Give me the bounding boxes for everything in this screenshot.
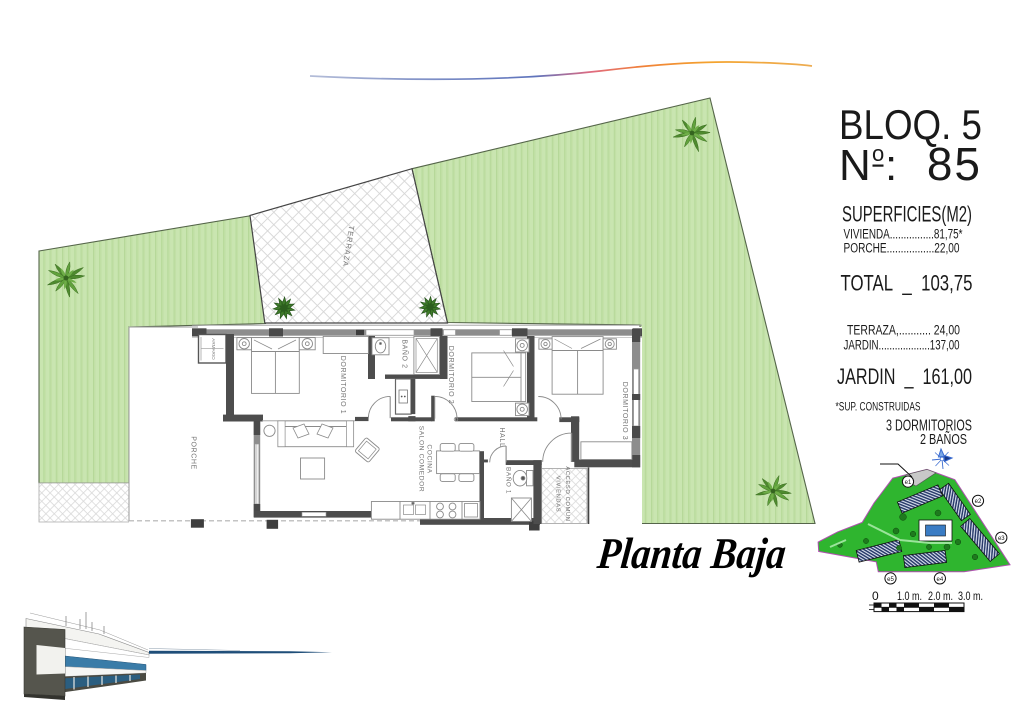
svg-text:ARMARIO: ARMARIO [211, 338, 216, 360]
svg-text:85: 85 [927, 138, 982, 190]
svg-text:0: 0 [872, 589, 879, 603]
svg-text:HALL: HALL [498, 428, 505, 448]
svg-text:N: N [839, 141, 871, 190]
svg-text:JARDIN...................137,0: JARDIN...................137,00 [844, 338, 960, 353]
svg-text:Planta Baja: Planta Baja [594, 529, 788, 578]
svg-text:e3: e3 [998, 536, 1005, 542]
svg-text:BAÑO 1: BAÑO 1 [505, 467, 514, 494]
svg-text:ACCESO COMUN: ACCESO COMUN [564, 466, 570, 521]
svg-text:VIVIENDAS: VIVIENDAS [555, 476, 561, 512]
svg-text:SALON COMEDOR: SALON COMEDOR [418, 426, 425, 492]
svg-text:2 BAÑOS: 2 BAÑOS [920, 431, 967, 448]
svg-text:2.0 m.: 2.0 m. [928, 589, 953, 603]
svg-text::: : [885, 141, 897, 190]
svg-text:e1: e1 [905, 480, 912, 486]
svg-text:TERRAZA,........... 24,00: TERRAZA,........... 24,00 [847, 323, 960, 338]
svg-text:1.0 m.: 1.0 m. [897, 589, 922, 603]
svg-text:*SUP. CONSTRUIDAS: *SUP. CONSTRUIDAS [836, 402, 921, 414]
svg-text:BAÑO 2: BAÑO 2 [401, 339, 410, 368]
svg-text:VIVIENDA................81,75*: VIVIENDA................81,75* [844, 227, 964, 242]
svg-text:e2: e2 [975, 499, 982, 505]
svg-text:PORCHE.................22,00: PORCHE.................22,00 [844, 241, 960, 256]
svg-text:TOTAL _ 103,75: TOTAL _ 103,75 [841, 271, 973, 296]
svg-text:DORMITORIO 1: DORMITORIO 1 [339, 356, 346, 414]
svg-text:e4: e4 [937, 577, 944, 583]
svg-text:COCINA: COCINA [426, 444, 433, 473]
svg-text:PORCHE: PORCHE [190, 436, 197, 470]
svg-text:3.0 m.: 3.0 m. [958, 589, 983, 603]
svg-text:DORMITORIO 2: DORMITORIO 2 [447, 346, 454, 404]
svg-text:JARDIN _ 161,00: JARDIN _ 161,00 [837, 364, 972, 389]
svg-text:DORMITORIO 3: DORMITORIO 3 [621, 382, 628, 440]
svg-text:SUPERFICIES(M2): SUPERFICIES(M2) [842, 202, 972, 227]
svg-text:o: o [872, 141, 884, 166]
svg-text:e5: e5 [887, 577, 894, 583]
